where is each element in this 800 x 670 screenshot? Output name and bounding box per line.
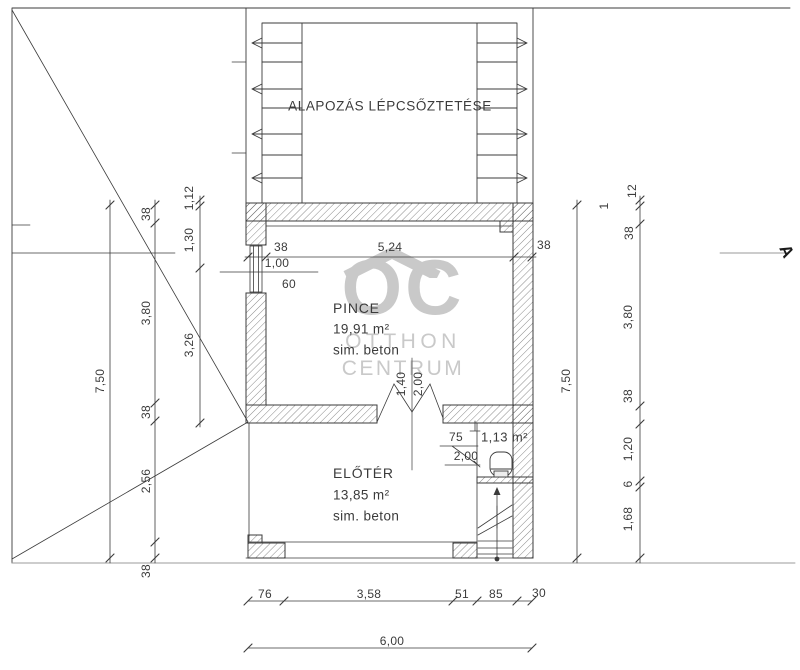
dimension-label-wc-door: 2,00	[454, 449, 479, 463]
floor-plan-canvas: OC OTTHON CENTRUM	[0, 0, 800, 670]
dimension-label-bottom-total: 6,00	[380, 634, 405, 648]
room-eloter-name: ELŐTÉR	[333, 465, 394, 481]
room-pince-area: 19,91 m²	[333, 322, 389, 337]
dimension-label-right-main: 6	[621, 481, 635, 488]
dimension-label-pince-door: 1,40	[394, 372, 408, 397]
dimension-label-right-main: 3,80	[621, 305, 635, 330]
dimension-label-left-inner: 1,30	[182, 228, 196, 253]
dimension-label-left-main: 2,56	[139, 469, 153, 494]
dimension-label-right-outer: 7,50	[559, 369, 573, 394]
dimension-label-top: 5,24	[378, 240, 403, 254]
toilet-symbol	[490, 452, 512, 477]
dimension-label-right-main: 1,68	[621, 507, 635, 532]
dimension-label-left-main: 38	[139, 564, 153, 578]
dimension-label-top: 38	[274, 240, 288, 254]
section-marker: A	[720, 242, 798, 261]
dimension-label-right-main: 1,20	[621, 437, 635, 462]
dimension-label-bottom: 3,58	[357, 587, 382, 601]
room-pince-name: PINCE	[333, 300, 380, 316]
room-eloter-area: 13,85 m²	[333, 488, 389, 503]
dimension-label-left-outer: 7,50	[93, 369, 107, 394]
dimension-label-bottom: 76	[258, 587, 272, 601]
foundation-stepping-label: ALAPOZÁS LÉPCSŐZTETÉSE	[288, 99, 492, 114]
page-border	[12, 8, 795, 563]
pince-door-symbol	[377, 358, 443, 470]
dimension-label-window: 60	[282, 277, 296, 291]
dimension-label-bottom: 30	[532, 586, 546, 600]
dimension-label-wc-door: 75	[449, 430, 463, 444]
dimension-label-window: 1,00	[265, 256, 290, 270]
window-symbol	[246, 245, 266, 293]
dimension-label-right-main: 38	[621, 389, 635, 403]
dimension-ticks	[106, 196, 644, 652]
site-diagonal-lines	[12, 10, 248, 559]
dimension-label-left-inner: 1,12	[182, 186, 196, 211]
dimension-label-right-main: 1	[597, 203, 611, 210]
dimension-label-pince-door: 2,00	[411, 372, 425, 397]
dimension-label-right-main: 12	[625, 184, 639, 198]
dimension-label-left-inner: 3,26	[182, 333, 196, 358]
dimension-label-left-main: 38	[139, 207, 153, 221]
dimension-label-top: 38	[537, 238, 551, 252]
section-marker-letter: A	[775, 242, 797, 261]
dimension-label-bottom: 85	[489, 587, 503, 601]
stair-walkline	[494, 487, 501, 561]
dimension-label-left-main: 3,80	[139, 301, 153, 326]
room-pince-floor: sim. beton	[333, 343, 399, 358]
dimension-label-bottom: 51	[455, 587, 469, 601]
dimension-label-left-main: 38	[139, 405, 153, 419]
dimension-label-right-main: 38	[622, 226, 636, 240]
room-eloter-floor: sim. beton	[333, 509, 399, 524]
room-wc-area: 1,13 m²	[481, 430, 528, 445]
